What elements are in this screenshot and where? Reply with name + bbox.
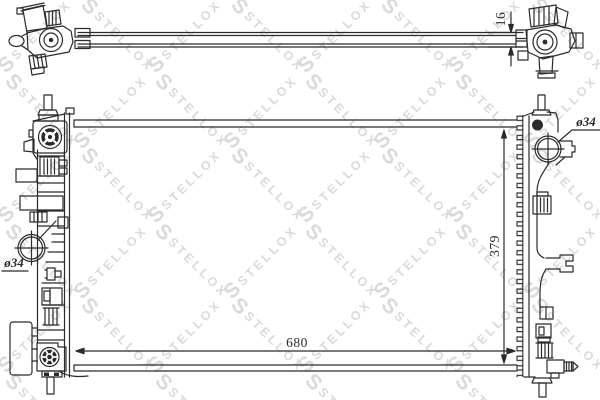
radiator-diagram: SSTELLOX SSTELLOX SSTELLOX SSTELLOX SSTE… (0, 0, 600, 400)
mount-hole (532, 120, 543, 131)
core-tank-seam (516, 115, 524, 377)
dim-label-680: 680 (286, 335, 308, 350)
dim-label-16: 16 (493, 12, 508, 27)
catalog-drawing-page: SSTELLOX SSTELLOX SSTELLOX SSTELLOX SSTE… (0, 0, 600, 400)
dim-label-o34-left: ø34 (3, 255, 24, 270)
dim-label-o34-right: ø34 (575, 114, 596, 129)
dim-label-379: 379 (487, 235, 502, 257)
